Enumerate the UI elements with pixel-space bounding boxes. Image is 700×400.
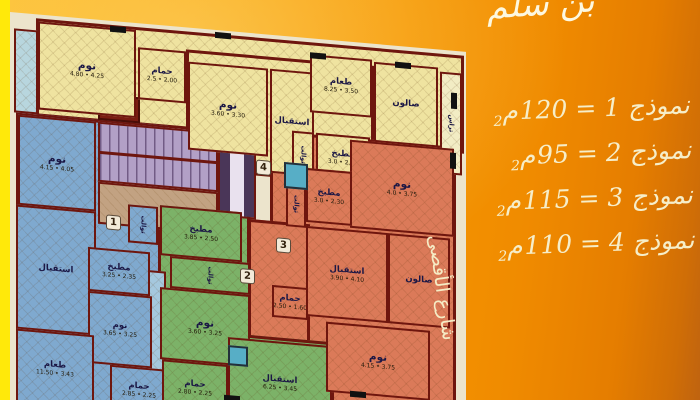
room-label: استقبال [18,207,94,334]
room-name: نوم [78,60,96,73]
room-y_dining: طعام8.25 • 3.50 [310,54,372,117]
room-r_bath: حمام2.50 • 1.60 [272,285,308,320]
unit-number-3: 3 [276,237,291,253]
room-label: مطبخ3.85 • 2.50 [162,207,240,260]
model-line-3: نموذج 3 = 115م2 [468,172,693,225]
room-y_bed2: نوم3.60 • 3.30 [188,62,268,157]
room-label: طعام8.25 • 3.50 [312,56,370,115]
room-name: طعام [330,77,352,88]
room-label: حمام2.50 • 1.60 [274,287,306,318]
room-dimensions: 3.65 • 3.25 [103,329,137,339]
unit-number-4: 4 [256,160,271,176]
room-dimensions: 4.15 • 3.75 [361,362,395,372]
unit-meter: م [502,96,518,126]
room-name: نوم [369,351,387,364]
room-dimensions: 2.5 • 2.00 [147,75,177,85]
room-y_bed1: نوم4.80 • 4.25 [38,21,136,118]
room-name: استقبال [39,264,74,276]
door-lintel [450,152,456,169]
room-name: مطبخ [189,225,212,236]
unit-squared: 2 [493,114,502,130]
room-name: حمام [128,381,149,392]
balcony [14,28,38,114]
room-name: تراس [447,114,454,132]
room-label: استقبال3.90 • 4.10 [308,228,386,321]
area-models-list: نموذج 1 = 120م2 نموذج 2 = 95م2 نموذج 3 =… [465,82,695,270]
room-r_recep: استقبال3.90 • 4.10 [306,226,388,323]
room-b_recep: استقبال [16,205,96,336]
room-label: حمام2.80 • 2.25 [164,361,226,400]
room-name: نوم [219,99,237,112]
room-dimensions: 4.15 • 4.05 [40,164,74,174]
floor-plan: نوم4.80 • 4.25حمام2.5 • 2.00نوم3.60 • 3.… [10,16,468,400]
room-name: توالت [292,195,299,214]
room-dimensions: 2.85 • 2.25 [122,390,156,400]
room-label: نوم4.15 • 3.75 [328,324,428,399]
unit-meter: م [506,231,522,261]
model-text: نموذج 4 = 110 [524,225,695,260]
room-dimensions: 2.80 • 2.25 [178,388,212,398]
room-name: حمام [279,293,300,304]
room-label: نوم3.65 • 3.25 [90,293,150,366]
door-lintel [350,391,366,398]
room-label: نوم3.60 • 3.30 [190,64,266,155]
room-name: مطبخ [317,188,340,199]
room-name: طعام [44,360,66,371]
door-lintel [310,52,326,59]
model-text: نموذج 3 = 115 [522,180,693,215]
room-r_bed2: نوم4.15 • 3.75 [326,322,430,400]
unit-meter: م [519,141,535,171]
top-title-partial: بن سلم [485,0,596,28]
flyer: نوم4.80 • 4.25حمام2.5 • 2.00نوم3.60 • 3.… [0,0,700,400]
room-label: طعام11.50 • 3.43 [18,331,92,400]
unit-meter: م [505,186,521,216]
room-name: توالت [299,145,306,164]
room-b_dining: طعام11.50 • 3.43 [16,329,94,400]
room-name: حمام [184,379,205,390]
room-name: صالون [392,99,419,111]
room-label: حمام2.85 • 2.25 [112,367,166,400]
room-y_salon: صالون [374,62,438,148]
room-label: مطبخ3.0 • 2.30 [308,170,350,224]
room-b_kitchen: مطبخ3.25 • 2.35 [88,247,150,296]
duct-shaft [228,345,248,367]
room-dimensions: 3.85 • 2.50 [184,233,218,243]
unit-squared: 2 [498,249,507,265]
room-dimensions: 8.25 • 3.50 [324,86,358,96]
room-label: نوم4.15 • 4.05 [20,117,94,209]
room-dimensions: 3.0 • 2.30 [314,197,344,207]
room-dimensions: 2.50 • 1.60 [274,302,306,312]
room-dimensions: 6.25 • 3.45 [263,383,297,393]
room-label: نوم4.80 • 4.25 [40,24,134,116]
room-dimensions: 4.0 • 3.75 [387,189,417,199]
room-dimensions: 11.50 • 3.43 [36,368,74,378]
room-label: نوم4.0 • 3.75 [352,142,452,235]
unit-number-2: 2 [240,268,255,284]
model-text: نموذج 1 = 120 [519,90,690,125]
room-name: نوم [48,153,66,166]
room-name: استقبال [263,374,298,386]
room-r_bed1: نوم4.0 • 3.75 [350,140,454,237]
room-y_bath: حمام2.5 • 2.00 [138,47,186,103]
unit-number-1: 1 [106,214,121,230]
room-b_bed2: نوم3.65 • 3.25 [88,291,152,369]
room-label: توالت [172,258,248,293]
room-dimensions: 4.80 • 4.25 [70,71,104,81]
room-name: مطبخ [107,262,130,273]
room-name: حمام [151,66,172,77]
room-dimensions: 3.60 • 3.30 [211,110,245,120]
room-g_kitchen: مطبخ3.85 • 2.50 [160,205,242,262]
room-label: توالت [130,206,156,242]
room-label: حمام2.5 • 2.00 [140,49,184,101]
door-lintel [451,93,457,110]
room-dimensions: 3.90 • 4.10 [330,274,364,284]
unit-squared: 2 [497,204,506,220]
room-r_kitchen: مطبخ3.0 • 2.30 [306,168,352,226]
model-line-1: نموذج 1 = 120م2 [465,82,690,135]
room-label: مطبخ3.25 • 2.35 [90,249,148,294]
room-g_bath: حمام2.80 • 2.25 [162,359,228,400]
room-dimensions: 3.60 • 3.25 [188,328,222,338]
room-name: نوم [393,178,411,191]
duct-shaft [284,162,308,190]
room-b_bath: حمام2.85 • 2.25 [110,365,168,400]
model-text: نموذج 2 = 95 [537,135,692,169]
room-name: توالت [139,215,146,234]
room-name: استقبال [330,265,365,277]
room-name: استقبال [275,116,310,128]
yellow-edge-strip [0,0,10,400]
door-lintel [224,395,240,400]
room-name: نوم [113,321,128,332]
model-line-4: نموذج 4 = 110م2 [470,217,695,270]
room-dimensions: 3.25 • 2.35 [102,271,136,281]
door-lintel [215,32,231,39]
door-lintel [395,62,411,69]
model-line-2: نموذج 2 = 95م2 [466,127,691,180]
room-label: صالون [376,64,436,145]
room-name: توالت [206,266,213,285]
door-lintel [110,26,126,33]
room-b_bed1: نوم4.15 • 4.05 [18,115,96,212]
room-name: نوم [196,317,214,330]
room-b_wc: توالت [128,204,158,245]
